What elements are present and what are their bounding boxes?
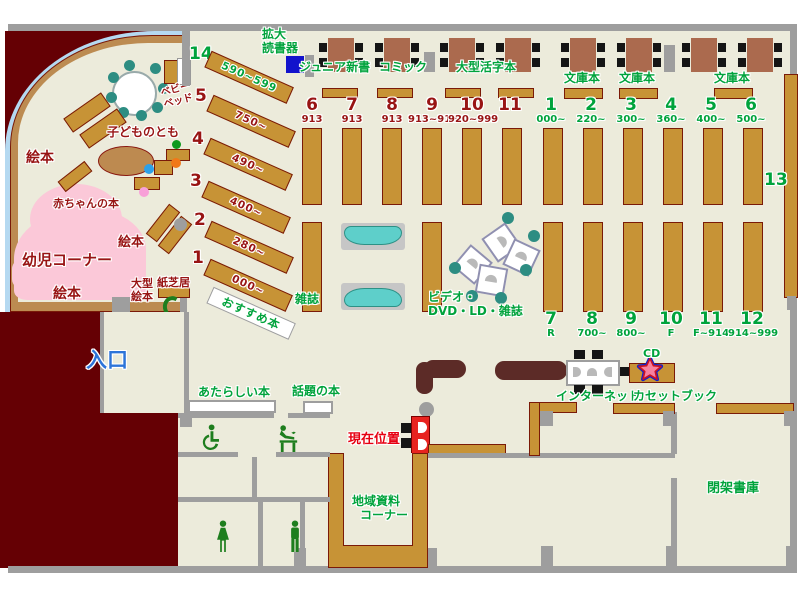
label-current-location: 現在位置 bbox=[348, 428, 400, 447]
label-kamishibai: 紙芝居 bbox=[157, 277, 190, 290]
shelf-range: 914~999 bbox=[728, 328, 776, 340]
label-local-line2: コーナー bbox=[352, 509, 408, 523]
chair bbox=[774, 43, 782, 52]
reading-table bbox=[570, 38, 596, 72]
stack-shelf bbox=[543, 128, 563, 205]
chair bbox=[682, 58, 690, 67]
chair bbox=[411, 43, 419, 52]
label-akachan: 赤ちゃんの本 bbox=[53, 198, 119, 211]
label-cd: CD bbox=[643, 348, 660, 361]
bench-seat bbox=[344, 226, 402, 245]
reading-table bbox=[747, 38, 773, 72]
label-kakudai: 拡大 読書器 bbox=[262, 28, 298, 56]
chair bbox=[653, 43, 661, 52]
label-kodomonotomo: 子どものとも bbox=[107, 126, 179, 140]
stack-shelf bbox=[663, 128, 683, 205]
wheelchair-icon bbox=[197, 424, 224, 453]
new-books-shelf bbox=[188, 400, 276, 413]
wall-segment bbox=[288, 413, 330, 418]
pillar bbox=[428, 548, 437, 566]
wall-segment bbox=[276, 452, 330, 457]
chair bbox=[440, 58, 448, 67]
chair bbox=[496, 43, 504, 52]
chair bbox=[738, 43, 746, 52]
chair bbox=[440, 43, 448, 52]
exterior-bottom-left bbox=[0, 413, 178, 568]
chair bbox=[620, 367, 629, 376]
label-bunko-2: 文庫本 bbox=[619, 72, 655, 86]
chair bbox=[375, 43, 383, 52]
chair bbox=[574, 350, 585, 359]
chair bbox=[532, 43, 540, 52]
shelf-number: 2 bbox=[194, 212, 206, 229]
stack-shelf bbox=[422, 128, 442, 205]
service-counter bbox=[495, 361, 567, 380]
service-counter bbox=[416, 362, 433, 394]
chair-dot bbox=[150, 63, 161, 74]
shelf-number: 4 bbox=[192, 131, 204, 148]
pillar bbox=[786, 546, 794, 566]
marker-detail bbox=[418, 422, 427, 433]
shelf-number-13: 13 bbox=[764, 172, 788, 189]
stack-shelf bbox=[543, 222, 563, 312]
stool-blue bbox=[144, 164, 154, 174]
carrel-screen bbox=[515, 250, 529, 261]
pillar bbox=[787, 296, 796, 310]
stack-shelf bbox=[382, 128, 402, 205]
internet-table bbox=[566, 360, 620, 386]
man-icon bbox=[285, 520, 305, 552]
stack-shelf bbox=[703, 128, 723, 205]
label-zasshi: 雑誌 bbox=[295, 293, 319, 307]
label-ehon-2: 絵本 bbox=[118, 236, 144, 251]
label-entrance: 入口 bbox=[86, 344, 128, 374]
label-ogata-ehon: 大型 絵本 bbox=[131, 278, 153, 303]
stack-shelf bbox=[743, 128, 763, 205]
bench bbox=[341, 283, 405, 310]
library-floor-map: 子どものとも ベビー ベッド 絵本 絵本 絵本 赤ちゃんの本 幼児コーナー 大型… bbox=[0, 0, 800, 600]
wall-segment bbox=[178, 413, 274, 418]
computer-icon bbox=[587, 368, 597, 376]
chair bbox=[561, 58, 569, 67]
chair bbox=[617, 58, 625, 67]
wall-segment bbox=[178, 497, 330, 502]
label-kakudai-line1: 拡大 bbox=[262, 28, 298, 42]
label-local-line1: 地域資料 bbox=[352, 495, 408, 509]
bench bbox=[341, 223, 405, 250]
chair-dot bbox=[152, 102, 163, 113]
chair bbox=[682, 43, 690, 52]
wall-segment bbox=[428, 453, 675, 458]
computer-icon bbox=[573, 367, 581, 377]
room-shelf bbox=[529, 402, 540, 456]
stack-shelf bbox=[743, 222, 763, 312]
stack-shelf bbox=[703, 222, 723, 312]
chair-dot bbox=[528, 230, 540, 242]
shelf-number: 5 bbox=[195, 88, 207, 105]
label-topic-books: 話題の本 bbox=[292, 385, 340, 399]
carrel-screen bbox=[485, 274, 498, 283]
chair bbox=[653, 58, 661, 67]
chair bbox=[355, 43, 363, 52]
reading-table bbox=[626, 38, 652, 72]
label-cassette: カセットブック bbox=[633, 390, 717, 404]
label-junior-shinsho: ジュニア新書 bbox=[299, 61, 370, 75]
marker-detail bbox=[418, 439, 427, 450]
stack-shelf bbox=[623, 128, 643, 205]
baby-change-icon bbox=[275, 424, 303, 452]
stack-shelf bbox=[342, 128, 362, 205]
chair-dot bbox=[124, 60, 135, 71]
computer-icon bbox=[604, 367, 612, 377]
chair bbox=[718, 58, 726, 67]
shelf-number: 1 bbox=[192, 250, 204, 267]
label-large-print: 大型活字本 bbox=[456, 61, 516, 75]
label-yoji-corner: 幼児コーナー bbox=[22, 252, 112, 269]
label-bunko-3: 文庫本 bbox=[714, 72, 750, 86]
label-video-line2: DVD・LD・雑誌 bbox=[428, 305, 523, 319]
chair-dot bbox=[520, 264, 532, 276]
stack-shelf bbox=[583, 222, 603, 312]
label-comic: コミック bbox=[379, 61, 427, 75]
wall-top bbox=[8, 24, 794, 31]
pillar bbox=[784, 411, 794, 426]
label-ehon-1: 絵本 bbox=[26, 150, 54, 166]
shelf-range: 500~ bbox=[727, 114, 775, 126]
chair bbox=[718, 43, 726, 52]
label-video: ビデオ・ DVD・LD・雑誌 bbox=[428, 291, 523, 319]
shelf-number: 3 bbox=[190, 173, 202, 190]
pillar-round bbox=[174, 218, 187, 231]
wall-segment bbox=[252, 457, 257, 502]
pillar bbox=[540, 411, 553, 426]
pillar-round bbox=[419, 402, 434, 417]
stack-shelf bbox=[302, 128, 322, 205]
room-shelf bbox=[716, 403, 794, 414]
shelf-number: 12 bbox=[728, 311, 776, 328]
stack-shelf bbox=[462, 128, 482, 205]
chair-dot bbox=[449, 262, 461, 274]
stack-shelf bbox=[583, 128, 603, 205]
stack-shelf bbox=[663, 222, 683, 312]
marker-block bbox=[401, 423, 411, 433]
baby-bed bbox=[164, 60, 178, 84]
pillar bbox=[664, 45, 675, 72]
label-closed-stacks: 閉架書庫 bbox=[707, 482, 759, 497]
shelf-range: 920~999 bbox=[448, 114, 496, 126]
chair bbox=[319, 43, 327, 52]
marker-block bbox=[401, 438, 411, 448]
stack-shelf bbox=[623, 222, 643, 312]
chair bbox=[617, 43, 625, 52]
pillar bbox=[541, 546, 553, 566]
label-ogata-line1: 大型 bbox=[131, 278, 153, 291]
chair bbox=[597, 43, 605, 52]
label-ogata-line2: 絵本 bbox=[131, 291, 153, 304]
infant-area-blob bbox=[30, 184, 122, 254]
bench-seat bbox=[344, 288, 402, 307]
label-new-books: あたらしい本 bbox=[198, 386, 270, 400]
chair-dot bbox=[502, 212, 514, 224]
label-video-line1: ビデオ・ bbox=[428, 291, 523, 305]
chair bbox=[532, 58, 540, 67]
chair-dot bbox=[136, 110, 147, 121]
label-ehon-3: 絵本 bbox=[53, 286, 81, 302]
stool-orange bbox=[171, 158, 181, 168]
wall-vestibule-right bbox=[184, 312, 189, 413]
chair bbox=[592, 350, 603, 359]
chair bbox=[597, 58, 605, 67]
chair bbox=[774, 58, 782, 67]
shelf-number: 6 bbox=[727, 97, 775, 114]
stool-pink bbox=[139, 187, 149, 197]
label-local-materials: 地域資料 コーナー bbox=[352, 495, 408, 523]
chair bbox=[561, 43, 569, 52]
reading-table bbox=[691, 38, 717, 72]
pillar bbox=[666, 546, 677, 566]
chair bbox=[476, 43, 484, 52]
label-kakudai-line2: 読書器 bbox=[262, 42, 298, 56]
chair-dot bbox=[108, 72, 119, 83]
woman-icon bbox=[213, 520, 233, 552]
chair bbox=[738, 58, 746, 67]
wall-segment bbox=[258, 502, 263, 566]
label-bunko-1: 文庫本 bbox=[564, 72, 600, 86]
pillar bbox=[663, 411, 674, 426]
stool-green bbox=[172, 140, 181, 149]
carrel-screen bbox=[497, 234, 510, 248]
door-gap bbox=[112, 297, 130, 312]
stack-shelf bbox=[502, 128, 522, 205]
